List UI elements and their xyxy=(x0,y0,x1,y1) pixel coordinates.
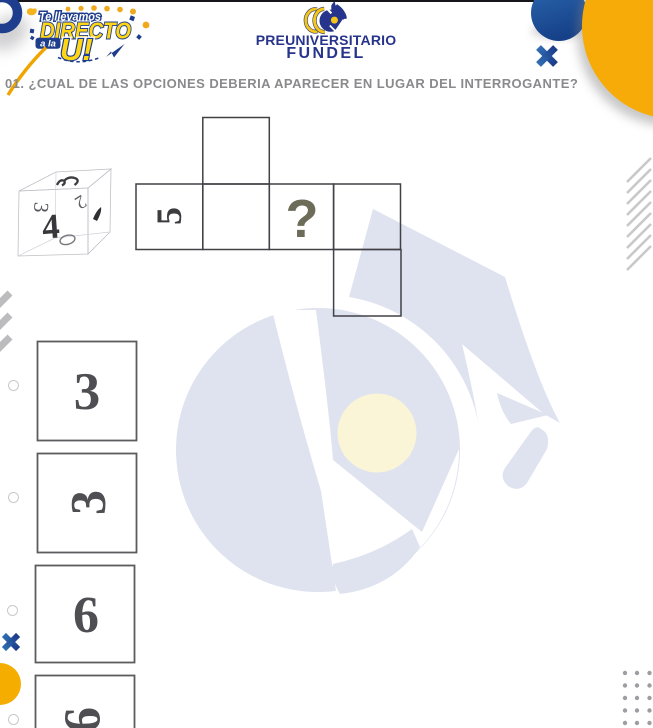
svg-text:5: 5 xyxy=(149,207,189,225)
svg-text:?: ? xyxy=(286,189,319,249)
svg-text:3: 3 xyxy=(60,490,116,515)
svg-text:6: 6 xyxy=(73,587,99,644)
svg-text:a la: a la xyxy=(40,39,56,50)
svg-text:3: 3 xyxy=(74,363,101,421)
svg-text:3: 3 xyxy=(29,201,54,214)
svg-text:2: 2 xyxy=(71,190,90,213)
svg-text:6: 6 xyxy=(55,707,112,728)
